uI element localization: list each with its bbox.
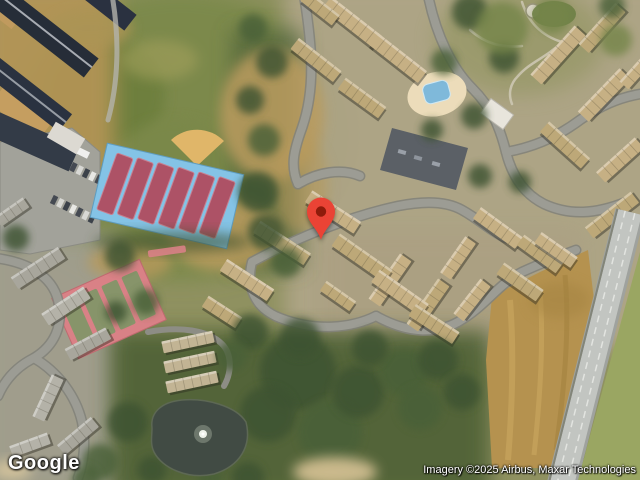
pond [152, 400, 248, 476]
google-logo[interactable]: Google [8, 452, 80, 475]
imagery-attribution: Imagery ©2025 Airbus, Maxar Technologies [423, 464, 636, 476]
map-pin-icon[interactable] [306, 197, 336, 241]
map-canvas[interactable]: Google Imagery ©2025 Airbus, Maxar Techn… [0, 0, 640, 480]
